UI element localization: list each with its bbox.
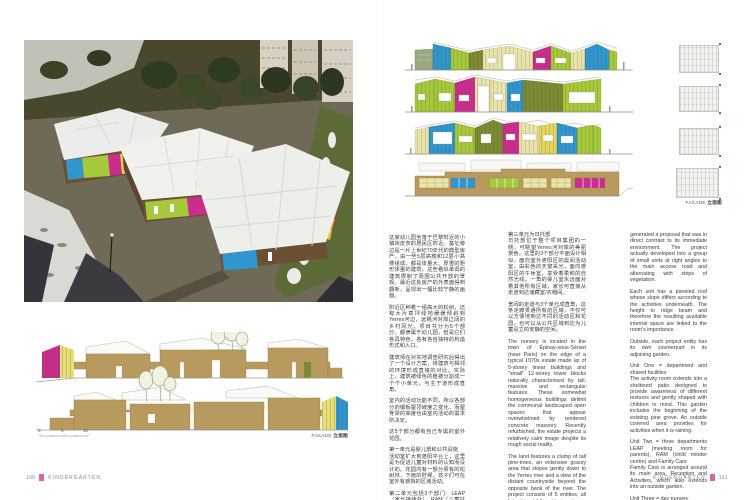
paragraph: Unit Two = three departments LEAP (meeti… — [630, 439, 707, 491]
facade-label-en: FACADE — [312, 433, 332, 438]
elevation-row-1 — [405, 42, 633, 70]
paragraph: 附近区种着一组高大的松树，还有大片草坪绿地缓缓倾斜到Yerres河边，远眺河对岸… — [389, 305, 465, 350]
paragraph: Outside, each project entity has its own… — [630, 339, 707, 358]
detail-drawing-2 — [679, 86, 719, 112]
facade-label-cn: 立面图 — [333, 433, 348, 438]
detail-drawing-1 — [679, 45, 719, 73]
paragraph: 建筑师在对实地调查研究后得出了一个设计方案，将建筑与相邻的环境形成直接的对比。实… — [389, 355, 465, 394]
footer-right: KINDERGARTEN 161 — [653, 474, 728, 481]
footer-left: 160 KINDERGARTEN — [26, 474, 101, 481]
elevation-colour-end-right — [322, 396, 348, 430]
detail-drawing-4 — [676, 168, 719, 198]
book-title: KINDERGARTEN — [48, 475, 101, 481]
aerial-photo — [24, 40, 353, 302]
paragraph: 第一单元是婴儿部和公共设施 活动室扩大到遮阳平台上，这里是为促进儿童对材料的认知… — [389, 447, 465, 486]
scale-tick-0: 0 — [38, 428, 41, 433]
facade-label-cn: 立面图 — [707, 200, 722, 205]
elevation-row-4 — [405, 160, 633, 196]
paragraph: 这5个部分都有自己专属的室外花园。 — [389, 429, 465, 442]
facade-label-left: FACADE 立面图 — [288, 433, 348, 439]
elevation-green-door — [304, 362, 311, 378]
paragraph: 宽阔的走道与3个单元成直角，这条走廊贯通所有的区域，不仅可以方便地到达不同的活动… — [508, 302, 586, 334]
text-column-mixed-2: 第三单元为日托部 日托部位于整个项目集团的一侧，可眺望Yerres河对岸的美丽景… — [508, 232, 586, 500]
paragraph: Unit One = department and shared facilit… — [630, 363, 707, 434]
paragraph: The nursery is located in the town of Ép… — [508, 339, 586, 449]
scale-bar — [40, 434, 88, 436]
paragraph: 第三单元为日托部 日托部位于整个项目集团的一侧，可眺望Yerres河对岸的美丽景… — [508, 232, 586, 297]
paragraph: Each unit has a paneled roof whose slope… — [630, 289, 707, 334]
page-gutter — [377, 0, 378, 500]
facade-label-right: FACADE 立面图 — [660, 200, 722, 206]
elevation-colour-end-left — [42, 345, 74, 378]
detail-drawing-3 — [679, 128, 719, 155]
elevation-row-b — [50, 398, 322, 430]
scale-tick-5: 5 — [61, 428, 64, 433]
footer-marker-icon — [39, 474, 44, 481]
elevation-row-3 — [405, 118, 633, 154]
book-title: KINDERGARTEN — [653, 475, 706, 481]
facade-elevations-right — [405, 36, 635, 208]
paragraph: generated a proposal that was in direct … — [630, 232, 707, 284]
facade-label-en: FACADE — [686, 200, 706, 205]
text-column-chinese-1: 这家幼儿园坐落于巴黎附近的小镇埃皮奈的居民区附近。基址旁边是一片上世纪70年代的… — [389, 235, 465, 500]
page-number: 160 — [26, 475, 35, 481]
paragraph: 室内的活动功能不同，所以各部分的镶板屋顶坡度之变化，而屋脊梁的高度也由室内活动的… — [389, 398, 465, 424]
scale-tick-10: 10 — [83, 428, 89, 433]
text-column-english-3: generated a proposal that was in direct … — [630, 232, 707, 500]
elevation-row-2 — [405, 75, 633, 112]
paragraph: Unit Three = day nursery This is located… — [630, 496, 707, 500]
paragraph: The land features a clump of tall pine-t… — [508, 454, 586, 500]
footer-marker-icon — [710, 474, 715, 481]
facade-elevations-left: 0 5 10 — [30, 332, 350, 438]
page-number: 161 — [719, 475, 728, 481]
paragraph: 第二单元包括3个部门：LEAP（家长接待处）、RAM（儿童托管房间）和家庭医疗部… — [389, 491, 465, 500]
paragraph: 这家幼儿园坐落于巴黎附近的小镇埃皮奈的居民区附近。基址旁边是一片上世纪70年代的… — [389, 235, 465, 300]
book-spread: 0 5 10 FACADE 立面图 160 KINDERGARTEN — [0, 0, 754, 500]
